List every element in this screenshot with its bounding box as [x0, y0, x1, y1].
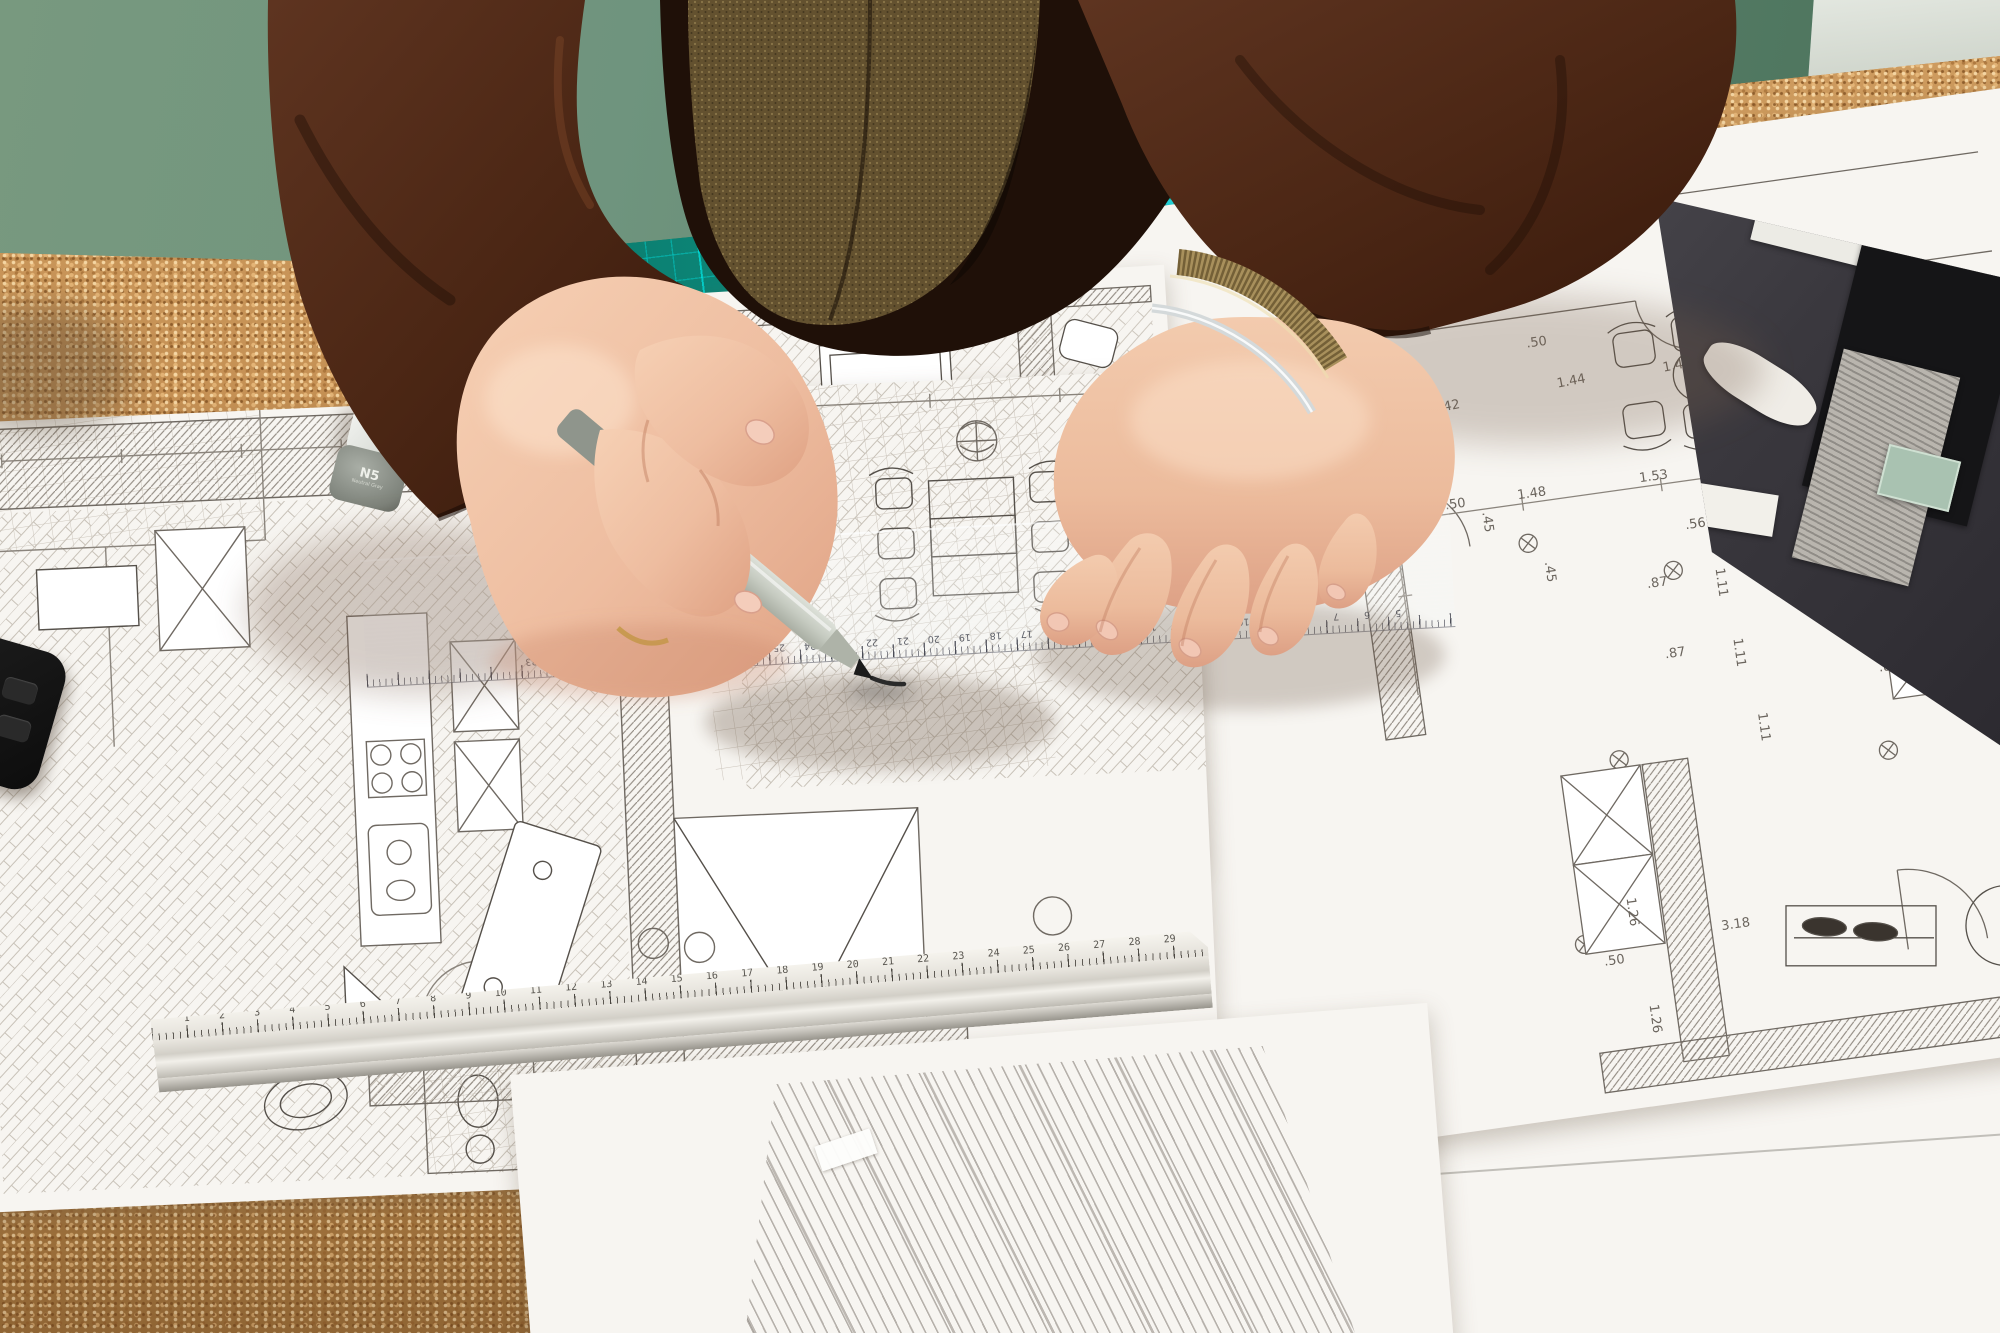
- right-sleeve: [1078, 0, 1736, 337]
- right-arm: [1078, 0, 1736, 337]
- hand-shading: [490, 624, 790, 700]
- photo-architect-drafting: 1.44 1.44 1.42 1.45 .50 .45 1.48 1.53 .5…: [0, 0, 2000, 1333]
- person-figure: [0, 0, 2000, 1333]
- hand-highlight: [1130, 360, 1370, 480]
